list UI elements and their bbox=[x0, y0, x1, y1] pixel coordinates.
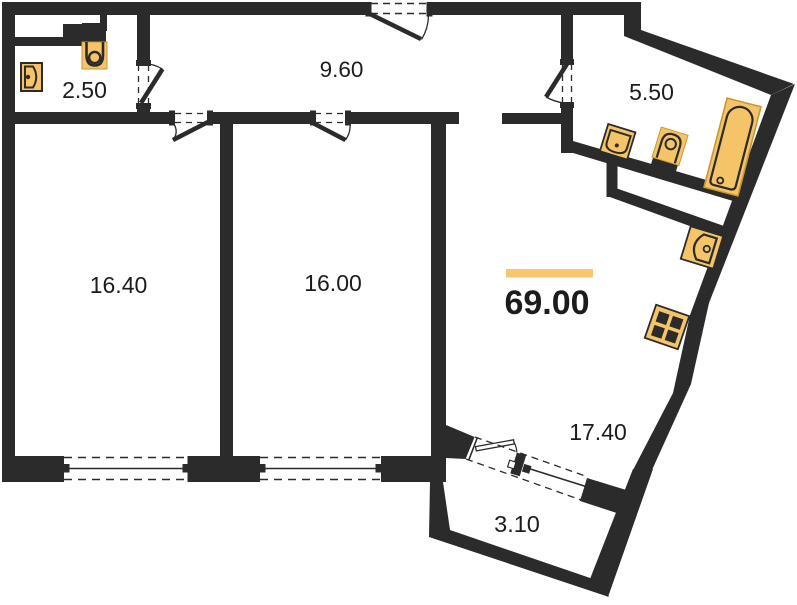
svg-text:5.50: 5.50 bbox=[629, 79, 674, 105]
svg-text:9.60: 9.60 bbox=[320, 57, 364, 82]
svg-text:16.00: 16.00 bbox=[304, 270, 362, 296]
svg-text:17.40: 17.40 bbox=[569, 419, 627, 445]
svg-text:16.40: 16.40 bbox=[90, 272, 148, 298]
svg-text:69.00: 69.00 bbox=[504, 284, 589, 322]
svg-text:3.10: 3.10 bbox=[494, 511, 540, 537]
svg-text:2.50: 2.50 bbox=[62, 77, 107, 103]
